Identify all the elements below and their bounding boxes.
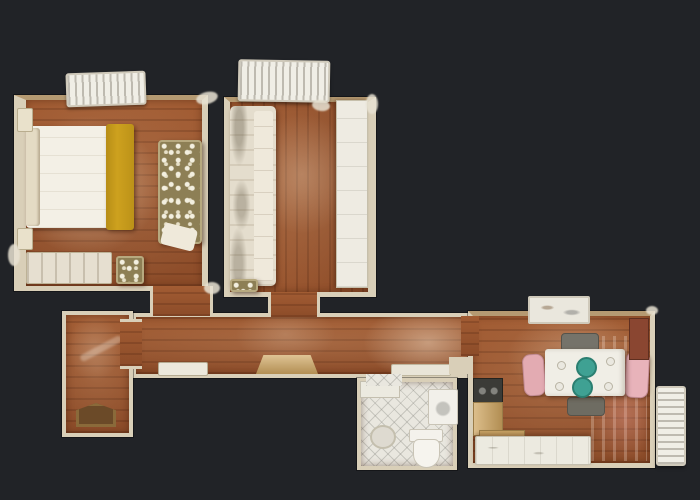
floorplan-canvas <box>0 0 700 500</box>
cream-sofa <box>230 106 276 286</box>
room-kitchen-dining <box>468 311 655 468</box>
room-hallway <box>132 313 468 378</box>
small-plate <box>555 382 564 391</box>
nightstand <box>17 108 33 132</box>
floral-pouf <box>230 279 258 292</box>
wall-segment <box>449 357 468 374</box>
radiator-icon <box>65 71 146 108</box>
floral-ottoman <box>116 256 144 284</box>
doormat <box>76 403 116 427</box>
doorway-bedroom <box>150 286 213 316</box>
doorway-kitchen <box>461 316 479 356</box>
scan-artifact <box>366 94 378 114</box>
bed-runner <box>106 124 134 230</box>
nightstand <box>17 228 33 250</box>
room-living <box>224 97 376 297</box>
dresser-bench <box>26 252 112 284</box>
doorway-bathroom <box>366 374 402 386</box>
kitchen-counter <box>475 436 591 465</box>
small-plate <box>557 361 566 370</box>
small-plate <box>604 382 613 391</box>
doorway-entry <box>120 319 142 369</box>
round-floor-mat <box>370 425 396 449</box>
scan-artifact <box>646 306 658 315</box>
room-bedroom <box>14 95 208 291</box>
window-sill-box <box>528 296 590 324</box>
stove-hob <box>473 378 503 404</box>
scan-artifact <box>8 244 20 266</box>
light-streak <box>79 335 123 363</box>
radiator-icon <box>656 386 686 466</box>
corner-cabinet <box>629 318 649 360</box>
room-bathroom <box>357 378 457 470</box>
toilet <box>413 439 440 468</box>
teal-plate <box>576 357 597 378</box>
door-panel <box>158 362 208 376</box>
teal-plate <box>572 377 593 398</box>
radiator-icon <box>238 59 331 103</box>
bed-pillows <box>26 128 40 226</box>
small-plate <box>606 357 615 366</box>
scan-artifact <box>204 282 220 294</box>
dining-chair-dark <box>567 397 605 416</box>
washing-machine <box>428 389 458 425</box>
dining-chair-pink <box>522 353 547 396</box>
doorway-living <box>268 292 320 317</box>
wardrobe <box>336 100 368 288</box>
console-rug <box>256 355 318 374</box>
